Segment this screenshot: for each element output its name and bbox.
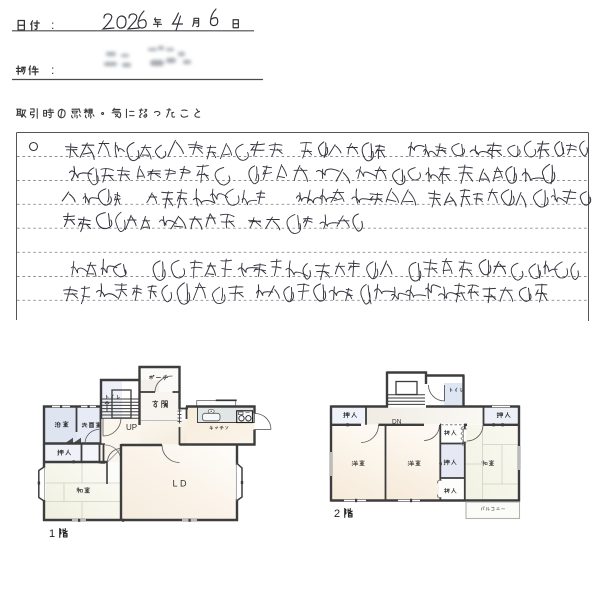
svg-text:LD: LD xyxy=(173,479,190,489)
svg-text::: : xyxy=(51,18,54,32)
svg-text:1: 1 xyxy=(49,528,55,540)
svg-text:UP: UP xyxy=(126,423,137,432)
svg-text::: : xyxy=(51,63,54,77)
svg-text:2: 2 xyxy=(334,508,340,520)
